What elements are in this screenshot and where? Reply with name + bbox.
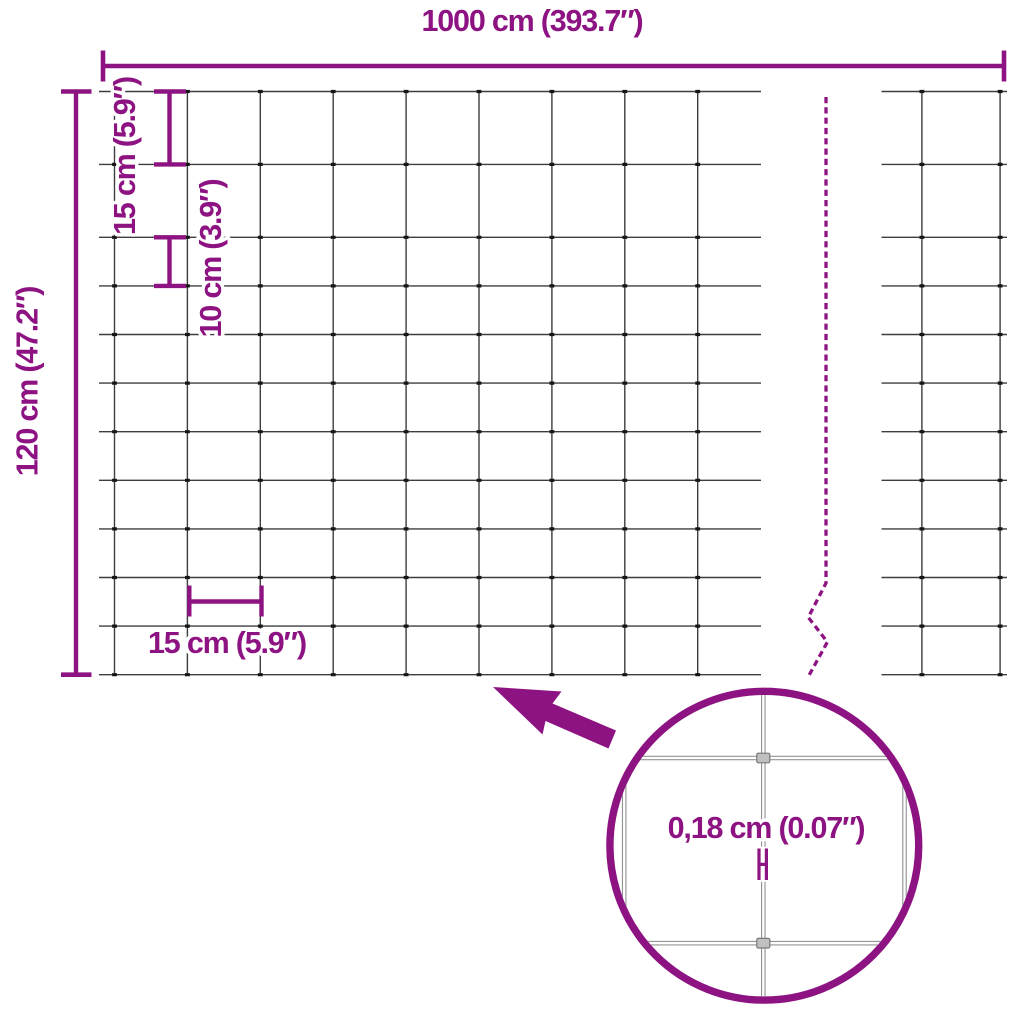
svg-text:1000 cm (393.7″): 1000 cm (393.7″) — [422, 4, 643, 38]
svg-text:120 cm (47.2″): 120 cm (47.2″) — [11, 287, 45, 476]
svg-text:10 cm (3.9″): 10 cm (3.9″) — [194, 180, 228, 338]
svg-text:15 cm (5.9″): 15 cm (5.9″) — [108, 77, 142, 235]
svg-text:15 cm (5.9″): 15 cm (5.9″) — [148, 626, 306, 660]
svg-text:0,18 cm (0.07″): 0,18 cm (0.07″) — [668, 811, 865, 845]
